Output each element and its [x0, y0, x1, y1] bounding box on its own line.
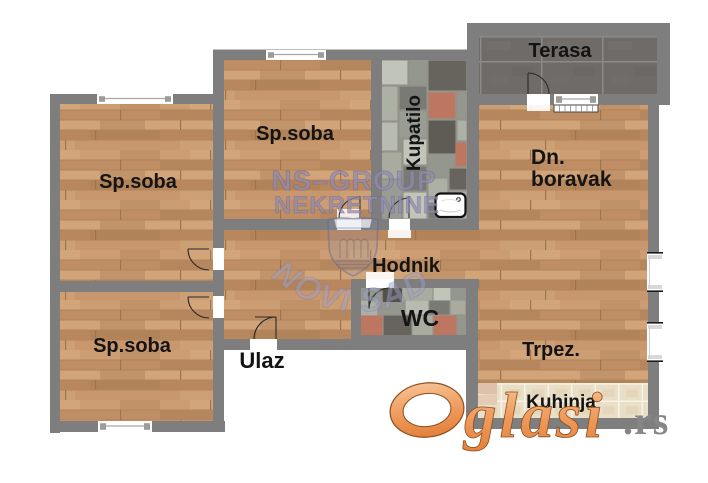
- svg-text:Hodnik: Hodnik: [372, 255, 441, 277]
- svg-text:Sp.soba: Sp.soba: [99, 171, 178, 193]
- svg-text:Kupatilo: Kupatilo: [404, 95, 425, 171]
- svg-text:.rs: .rs: [623, 398, 669, 443]
- svg-text:boravak: boravak: [531, 168, 612, 191]
- svg-text:NEKRETNINE: NEKRETNINE: [274, 192, 440, 219]
- svg-text:Sp.soba: Sp.soba: [256, 123, 335, 145]
- svg-text:Dn.: Dn.: [531, 146, 565, 169]
- svg-text:Ulaz: Ulaz: [239, 348, 284, 373]
- svg-text:Trpez.: Trpez.: [522, 339, 580, 361]
- svg-text:glasi: glasi: [462, 380, 605, 452]
- svg-text:Sp.soba: Sp.soba: [93, 335, 172, 357]
- svg-text:WC: WC: [401, 305, 439, 331]
- svg-text:Terasa: Terasa: [528, 40, 592, 62]
